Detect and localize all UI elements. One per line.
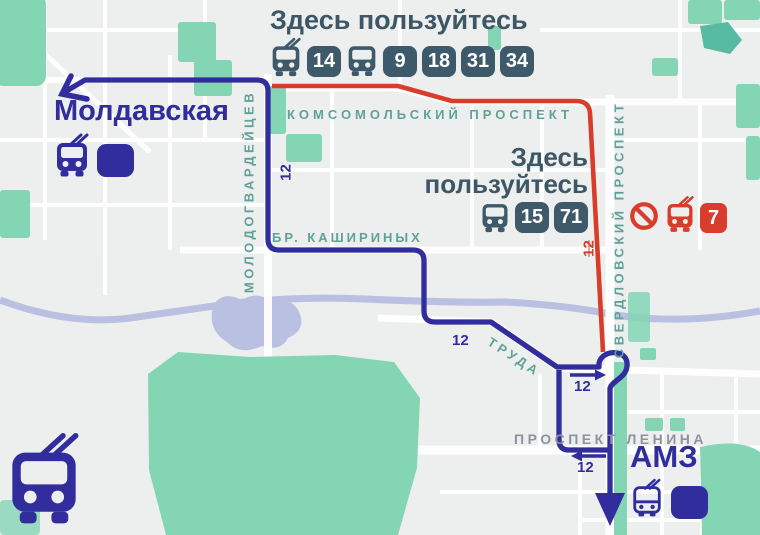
route-12-marker-molodogvardeytsev: 12 bbox=[278, 159, 295, 187]
trolleybus-icon bbox=[665, 195, 695, 233]
route-badge-bus: 18 bbox=[422, 46, 456, 77]
note-title: пользуйтесь bbox=[418, 171, 588, 198]
route-12-marker-eastbound: 12 bbox=[574, 378, 591, 395]
advice-note-mid: Здесь пользуйтесь 15 71 bbox=[418, 144, 588, 233]
trolleybus-icon bbox=[630, 477, 664, 519]
advice-note-top: Здесь пользуйтесь 14 bbox=[270, 6, 534, 77]
street-label-komsomolsky-prospekt: КОМСОМОЛЬСКИЙ ПРОСПЕКТ bbox=[287, 107, 573, 122]
route-badge-bus: 9 bbox=[383, 46, 417, 77]
note-title: Здесь bbox=[418, 144, 588, 171]
bus-icon bbox=[346, 44, 378, 77]
route-12-marker-truda: 12 bbox=[452, 332, 469, 349]
closed-route-note: 7 bbox=[628, 195, 727, 233]
route-12-marker-closed-segment: 12 bbox=[581, 234, 598, 264]
street-label-molodogvardeytsev: МОЛОДОГВАРДЕЙЦЕВ bbox=[242, 90, 257, 294]
trolleybus-icon bbox=[6, 428, 82, 528]
route-badge-closed: 7 bbox=[700, 203, 727, 233]
route-badge-12: 12 bbox=[97, 144, 134, 177]
route-badge-12: 12 bbox=[671, 486, 708, 519]
terminus-moldavskaya: Молдавская 12 bbox=[54, 97, 229, 177]
route-badge-trolleybus: 14 bbox=[307, 46, 341, 77]
street-label-br-kashirinykh: БР. КАШИРИНЫХ bbox=[272, 230, 423, 245]
note-title: Здесь пользуйтесь bbox=[270, 6, 534, 34]
no-entry-icon bbox=[628, 200, 660, 232]
street-label-sverdlovsky-prospekt: СВЕРДЛОВСКИЙ ПРОСПЕКТ bbox=[612, 96, 627, 364]
trolleybus-icon bbox=[270, 37, 302, 77]
terminus-name: Молдавская bbox=[54, 97, 229, 126]
street-label-prospekt-lenina: ПРОСПЕКТ ЛЕНИНА bbox=[514, 431, 707, 447]
route-badge-bus: 34 bbox=[500, 46, 534, 77]
route-12-marker-westbound: 12 bbox=[577, 459, 594, 476]
route-badge-bus: 31 bbox=[461, 46, 495, 77]
trolleybus-route-change-map: Здесь пользуйтесь 14 bbox=[0, 0, 760, 535]
terminus-amz: АМЗ 12 bbox=[630, 441, 708, 519]
trolleybus-icon bbox=[54, 133, 90, 177]
route-badge-bus: 15 bbox=[515, 202, 549, 233]
bus-icon bbox=[480, 202, 510, 233]
route-badge-bus: 71 bbox=[554, 202, 588, 233]
